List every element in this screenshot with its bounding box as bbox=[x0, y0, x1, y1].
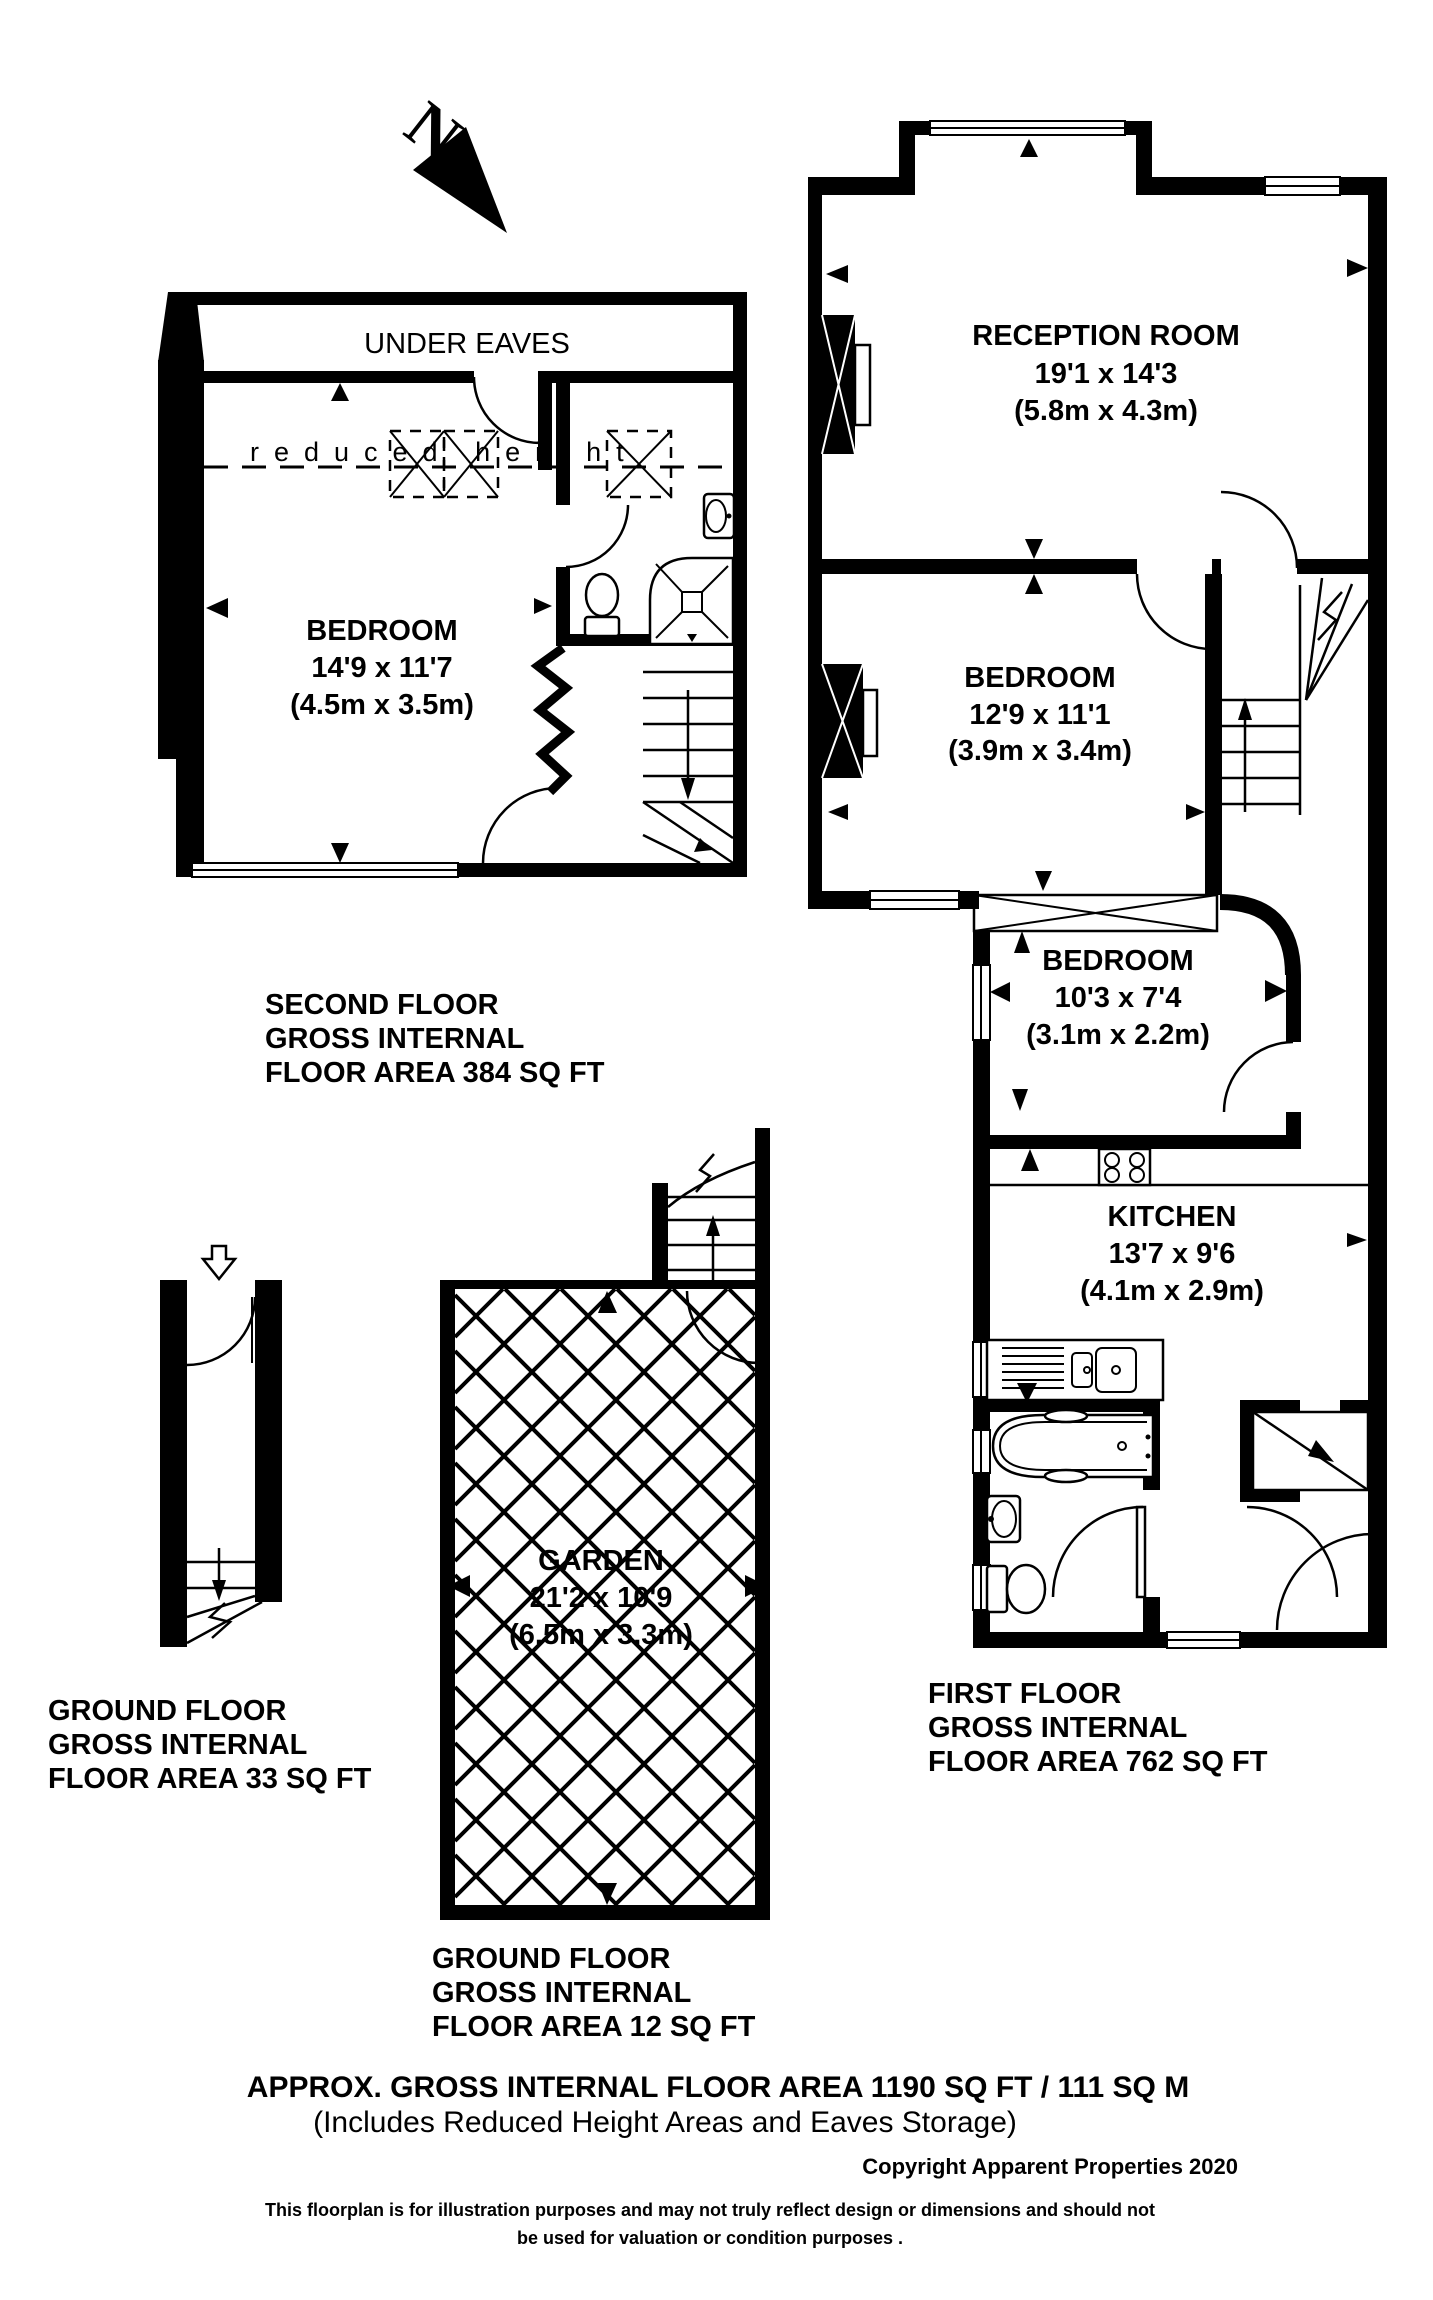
staircase-down bbox=[187, 1548, 262, 1643]
second-floor-plan: UNDER EAVES reduced height bbox=[158, 292, 747, 1089]
toilet-fixture bbox=[987, 1565, 1045, 1613]
window bbox=[192, 863, 458, 877]
door-arc bbox=[1137, 574, 1212, 649]
window bbox=[870, 891, 959, 909]
room-dimensions-imperial: 13'7 x 9'6 bbox=[1109, 1238, 1236, 1270]
room-dimensions-imperial: 21'2 x 10'9 bbox=[530, 1582, 673, 1614]
kitchen-sink-fixture bbox=[987, 1340, 1163, 1400]
external-staircase bbox=[652, 1128, 770, 1287]
footer: APPROX. GROSS INTERNAL FLOOR AREA 1190 S… bbox=[247, 2071, 1238, 2248]
ground-floor-hall-plan: GROUND FLOOR GROSS INTERNAL FLOOR AREA 3… bbox=[48, 1246, 372, 1795]
svg-text:FIRST FLOOR: FIRST FLOOR bbox=[928, 1678, 1121, 1710]
chimney-breast bbox=[822, 664, 877, 778]
floorplan-canvas: N UNDER EAVES bbox=[0, 0, 1433, 2300]
second-floor-caption: SECOND FLOOR GROSS INTERNAL FLOOR AREA 3… bbox=[265, 989, 605, 1089]
svg-text:GROSS INTERNAL: GROSS INTERNAL bbox=[432, 1977, 691, 2009]
svg-text:FLOOR AREA 12 SQ FT: FLOOR AREA 12 SQ FT bbox=[432, 2011, 756, 2043]
entrance-arrow-icon bbox=[203, 1246, 235, 1279]
garden-caption: GROUND FLOOR GROSS INTERNAL FLOOR AREA 1… bbox=[432, 1943, 756, 2043]
stairs-down-lobby bbox=[1253, 1412, 1368, 1490]
total-area-line: APPROX. GROSS INTERNAL FLOOR AREA 1190 S… bbox=[247, 2071, 1189, 2104]
first-floor-plan: RECEPTION ROOM 19'1 x 14'3 (5.8m x 4.3m)… bbox=[808, 121, 1387, 1778]
door-arc bbox=[1277, 1534, 1373, 1630]
room-dimensions-metric: (3.9m x 3.4m) bbox=[948, 735, 1132, 767]
disclaimer-line-1: This floorplan is for illustration purpo… bbox=[265, 2200, 1155, 2220]
door-leaf bbox=[1137, 1507, 1145, 1597]
curved-wall bbox=[1220, 902, 1293, 975]
chimney-breast bbox=[822, 315, 870, 454]
door-arc bbox=[1221, 492, 1297, 568]
structural-opening bbox=[974, 895, 1217, 931]
room-dimensions-imperial: 14'9 x 11'7 bbox=[311, 652, 452, 684]
stair-direction-arrow bbox=[694, 838, 712, 852]
sloped-eaves-wall bbox=[538, 648, 568, 792]
sink-fixture bbox=[987, 1496, 1020, 1542]
door-arc bbox=[187, 1297, 255, 1365]
room-label: BEDROOM bbox=[306, 615, 457, 647]
door-arc bbox=[1247, 1507, 1337, 1597]
svg-text:FLOOR AREA 33 SQ FT: FLOOR AREA 33 SQ FT bbox=[48, 1763, 372, 1795]
room-dimensions-metric: (5.8m x 4.3m) bbox=[1014, 395, 1198, 427]
area-note-line: (Includes Reduced Height Areas and Eaves… bbox=[313, 2106, 1017, 2139]
room-label: BEDROOM bbox=[964, 662, 1115, 694]
room-dimensions-metric: (3.1m x 2.2m) bbox=[1026, 1019, 1210, 1051]
room-label: GARDEN bbox=[538, 1545, 664, 1577]
svg-text:FLOOR AREA 762 SQ FT: FLOOR AREA 762 SQ FT bbox=[928, 1746, 1268, 1778]
room-dimensions-metric: (4.5m x 3.5m) bbox=[290, 689, 474, 721]
under-eaves-label: UNDER EAVES bbox=[364, 328, 570, 360]
svg-text:GROSS INTERNAL: GROSS INTERNAL bbox=[265, 1023, 524, 1055]
svg-text:GROUND FLOOR: GROUND FLOOR bbox=[48, 1695, 286, 1727]
svg-text:SECOND FLOOR: SECOND FLOOR bbox=[265, 989, 499, 1021]
shower-fixture bbox=[650, 558, 733, 644]
room-dimensions-imperial: 10'3 x 7'4 bbox=[1055, 982, 1182, 1014]
sink-fixture bbox=[704, 494, 734, 538]
svg-text:FLOOR AREA 384 SQ FT: FLOOR AREA 384 SQ FT bbox=[265, 1057, 605, 1089]
room-dimensions-metric: (4.1m x 2.9m) bbox=[1080, 1275, 1264, 1307]
door-arc bbox=[483, 788, 558, 863]
window bbox=[1167, 1632, 1240, 1648]
toilet-fixture bbox=[585, 574, 619, 636]
room-label: BEDROOM bbox=[1042, 945, 1193, 977]
first-floor-caption: FIRST FLOOR GROSS INTERNAL FLOOR AREA 76… bbox=[928, 1678, 1268, 1778]
north-arrow-icon: N bbox=[392, 88, 507, 233]
ground-floor-hall-caption: GROUND FLOOR GROSS INTERNAL FLOOR AREA 3… bbox=[48, 1695, 372, 1795]
window bbox=[973, 965, 990, 1040]
floorplan-page: N UNDER EAVES bbox=[0, 0, 1433, 2300]
garden-plan: GARDEN 21'2 x 10'9 (6.5m x 3.3m) GROUND … bbox=[432, 1128, 770, 2043]
copyright-line: Copyright Apparent Properties 2020 bbox=[862, 2154, 1238, 2179]
room-label: RECEPTION ROOM bbox=[972, 320, 1239, 352]
room-dimensions-metric: (6.5m x 3.3m) bbox=[509, 1619, 693, 1651]
hob-fixture bbox=[1099, 1149, 1150, 1185]
room-label: KITCHEN bbox=[1108, 1201, 1237, 1233]
room-dimensions-imperial: 19'1 x 14'3 bbox=[1035, 358, 1178, 390]
staircase-down bbox=[643, 672, 733, 863]
window bbox=[1265, 177, 1340, 195]
bathtub-fixture bbox=[993, 1410, 1153, 1482]
door-arc bbox=[566, 505, 628, 567]
svg-text:GROSS INTERNAL: GROSS INTERNAL bbox=[928, 1712, 1187, 1744]
door-arc bbox=[1224, 1042, 1293, 1112]
staircase-up bbox=[1222, 578, 1368, 815]
door-arc bbox=[687, 1291, 759, 1363]
door-arc bbox=[474, 377, 540, 443]
door-arc bbox=[1053, 1507, 1143, 1597]
disclaimer-line-2: be used for valuation or condition purpo… bbox=[517, 2228, 903, 2248]
svg-text:GROSS INTERNAL: GROSS INTERNAL bbox=[48, 1729, 307, 1761]
svg-text:GROUND FLOOR: GROUND FLOOR bbox=[432, 1943, 670, 1975]
window bbox=[930, 121, 1125, 135]
room-dimensions-imperial: 12'9 x 11'1 bbox=[969, 699, 1110, 731]
window bbox=[973, 1430, 990, 1473]
